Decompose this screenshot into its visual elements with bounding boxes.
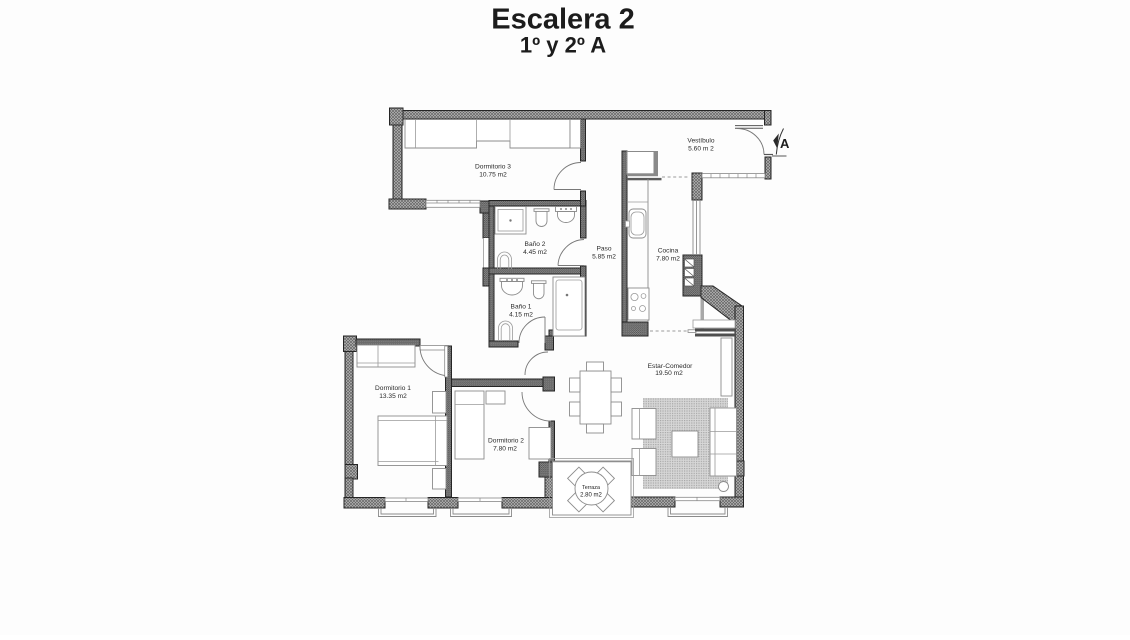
svg-text:Escalera 2: Escalera 2 (491, 4, 635, 36)
svg-text:Baño 1: Baño 1 (511, 304, 532, 311)
svg-text:5.60 m 2: 5.60 m 2 (688, 146, 714, 153)
svg-text:7.80 m2: 7.80 m2 (656, 256, 680, 263)
svg-text:4.15 m2: 4.15 m2 (509, 312, 533, 319)
svg-text:1º y 2º A: 1º y 2º A (520, 33, 606, 58)
svg-text:Dormitorio 3: Dormitorio 3 (475, 164, 511, 171)
svg-text:4.45 m2: 4.45 m2 (523, 249, 547, 256)
svg-text:Baño 2: Baño 2 (525, 241, 546, 248)
svg-text:Paso: Paso (596, 246, 611, 253)
svg-text:Vestíbulo: Vestíbulo (687, 138, 714, 145)
svg-text:2.80 m2: 2.80 m2 (580, 493, 602, 499)
svg-text:Dormitorio 2: Dormitorio 2 (488, 438, 524, 445)
svg-text:13.35 m2: 13.35 m2 (379, 393, 407, 400)
svg-text:Dormitorio 1: Dormitorio 1 (375, 385, 411, 392)
svg-text:5.85 m2: 5.85 m2 (592, 254, 616, 261)
svg-text:19.50 m2: 19.50 m2 (655, 370, 683, 377)
svg-text:Cocina: Cocina (658, 248, 679, 255)
svg-text:10.75 m2: 10.75 m2 (479, 172, 507, 179)
svg-text:Estar-Comedor: Estar-Comedor (648, 363, 694, 370)
svg-text:A: A (780, 136, 790, 151)
svg-text:Terraza: Terraza (582, 485, 600, 491)
svg-text:7.80 m2: 7.80 m2 (493, 446, 517, 453)
